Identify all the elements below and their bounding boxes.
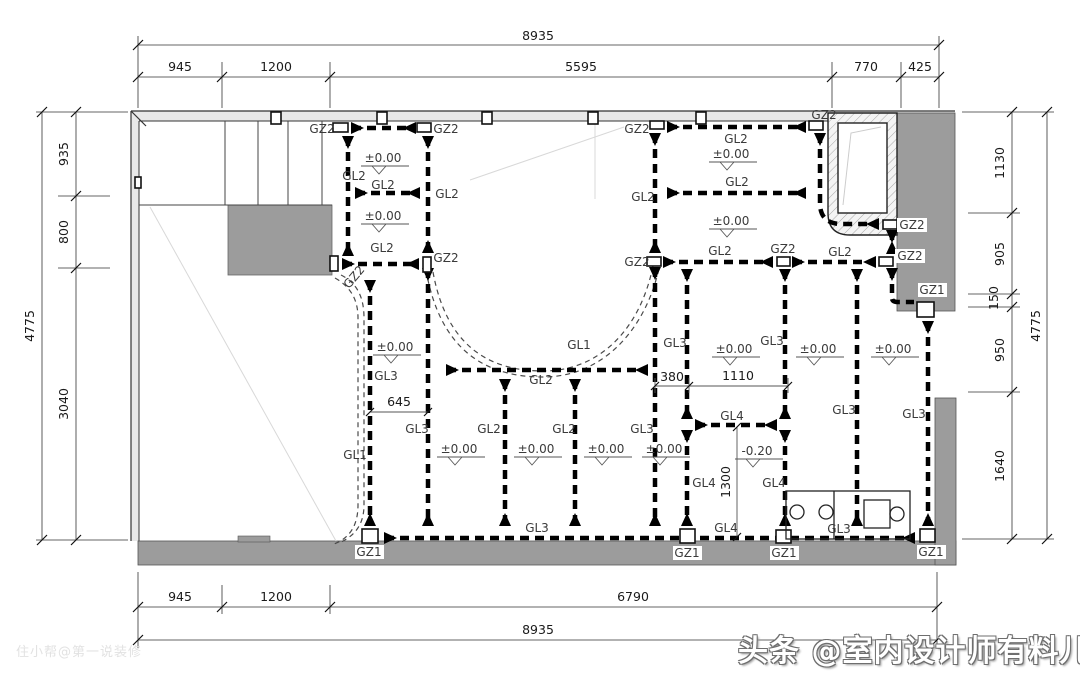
dimension-chain-right: 1130 905 150 950 1640 4775	[962, 107, 1054, 544]
gz2-column	[879, 257, 893, 266]
beam-layout-plan: ±0.00 ±0.00 ±0.00 ±0.00 ±0.00 ±0.00	[0, 0, 1080, 677]
level-marker: ±0.00	[584, 442, 632, 465]
left-wall-band	[131, 111, 139, 541]
gl2-label: GL2	[342, 169, 366, 183]
gz1-column	[680, 529, 695, 543]
gl3-label: GL3	[663, 336, 687, 350]
gl1-curve-inner	[433, 266, 653, 371]
gl2-label: GL2	[828, 245, 852, 259]
gz2-column	[330, 256, 338, 271]
dim-left-total: 4775	[22, 310, 37, 342]
dim-right-seg: 1130	[992, 147, 1007, 179]
gz2-column	[333, 123, 348, 132]
dim-top-seg: 425	[908, 59, 932, 74]
watermark-right: 头条 @室内设计师有料儿	[738, 626, 1080, 670]
elevator-shaft	[828, 113, 897, 235]
gz2-column	[883, 220, 897, 229]
gz2-label: GZ2	[624, 255, 649, 269]
wall-column	[271, 112, 281, 124]
dim-right-seg: 905	[992, 242, 1007, 266]
level-marker: ±0.00	[361, 209, 409, 232]
level-text: ±0.00	[588, 442, 625, 456]
gz2-label: GZ2	[811, 108, 836, 122]
dim-top-seg: 5595	[565, 59, 597, 74]
dim-380: 380	[660, 369, 684, 384]
fixture-circle	[890, 507, 904, 521]
level-text: ±0.00	[365, 209, 402, 223]
gz1-column	[776, 530, 791, 543]
level-text: ±0.00	[646, 442, 683, 456]
level-marker: ±0.00	[437, 442, 485, 465]
dim-left-seg: 3040	[56, 388, 71, 420]
dim-right-seg: 150	[986, 286, 1001, 310]
level-marker: ±0.00	[373, 340, 421, 363]
level-text: ±0.00	[875, 342, 912, 356]
gl4-label: GL4	[714, 521, 738, 535]
dim-right-seg: 1640	[992, 450, 1007, 482]
dim-top-seg: 770	[854, 59, 878, 74]
gl2-label: GL2	[631, 190, 655, 204]
gz2-label: GZ2	[897, 249, 922, 263]
dim-top-seg: 945	[168, 59, 192, 74]
dim-top-seg: 1200	[260, 59, 292, 74]
level-text: ±0.00	[365, 151, 402, 165]
gl3-label: GL3	[374, 369, 398, 383]
gz2-column	[650, 121, 664, 129]
gz2-label: GZ2	[770, 242, 795, 256]
gl3-label: GL3	[832, 403, 856, 417]
gl3-label: GL3	[827, 522, 851, 536]
dim-bottom-seg: 1200	[260, 589, 292, 604]
gz2-label: GZ2	[899, 218, 924, 232]
gl2-label: GL2	[370, 241, 394, 255]
gz1-tag: GZ1	[673, 546, 702, 560]
gz1-tag: GZ1	[918, 283, 947, 297]
dim-1110: 1110	[722, 368, 754, 383]
gz1-column	[920, 529, 935, 542]
dim-1300: 1300	[718, 466, 733, 498]
solid-block	[228, 205, 332, 275]
level-marker: ±0.00	[712, 342, 760, 365]
columns	[135, 112, 935, 543]
dim-left-seg: 935	[56, 142, 71, 166]
level-marker: ±0.00	[796, 342, 844, 365]
wall-column	[377, 112, 387, 124]
gz1-label: GZ1	[919, 283, 944, 297]
level-text: ±0.00	[713, 147, 750, 161]
left-curve-inner	[341, 275, 364, 542]
gz1-label: GZ1	[674, 546, 699, 560]
gl2-label: GL2	[435, 187, 459, 201]
dim-top-total: 8935	[522, 28, 554, 43]
level-marker: ±0.00	[871, 342, 919, 365]
right-wall-lower	[935, 398, 956, 565]
dim-right-seg: 950	[992, 338, 1007, 362]
gl2-label: GL2	[371, 178, 395, 192]
gz2-column	[777, 257, 790, 266]
gz2-tag: GZ2	[895, 249, 925, 263]
gl2-label: GL2	[529, 373, 553, 387]
gl1-label: GL1	[343, 448, 367, 462]
gl2-label: GL2	[724, 132, 748, 146]
floor-plan-screenshot: ±0.00 ±0.00 ±0.00 ±0.00 ±0.00 ±0.00	[0, 0, 1080, 677]
gl3-label: GL3	[630, 422, 654, 436]
gz2-tag: GZ2	[897, 218, 927, 232]
gz2-label: GZ2	[624, 122, 649, 136]
gz1-tag: GZ1	[917, 545, 946, 559]
left-curve-outer	[334, 278, 358, 544]
dim-left-seg: 800	[56, 220, 71, 244]
gz1-column	[362, 529, 378, 543]
shaft-opening	[838, 123, 887, 213]
dim-bottom-seg: 945	[168, 589, 192, 604]
gl2-label: GL2	[477, 422, 501, 436]
gl2-label: GL2	[552, 422, 576, 436]
level-marker: ±0.00	[709, 214, 757, 237]
gz2-label: GZ2	[433, 122, 458, 136]
staircase	[139, 121, 332, 205]
gl3-label: GL3	[902, 407, 926, 421]
gz2-column	[417, 123, 431, 132]
dimension-chain-top: 8935 945 1200 5595 770 425	[133, 28, 944, 108]
dim-bottom-total: 8935	[522, 622, 554, 637]
wall-column	[588, 112, 598, 124]
gl3-label: GL3	[525, 521, 549, 535]
gl1-label: GL1	[567, 338, 591, 352]
level-text: ±0.00	[800, 342, 837, 356]
fixture-square	[864, 500, 890, 528]
bottom-wall-step	[238, 536, 270, 542]
dim-bottom-seg: 6790	[617, 589, 649, 604]
curved-dashed-lines	[334, 264, 660, 544]
gl4-label: GL4	[720, 409, 744, 423]
level-marker: ±0.00	[709, 147, 757, 170]
gz1-label: GZ1	[356, 545, 381, 559]
dim-right-total: 4775	[1028, 310, 1043, 342]
level-marker-minus: -0.20	[735, 444, 783, 467]
dimension-chain-left: 935 800 3040 4775	[22, 107, 128, 545]
gz2-column	[423, 257, 431, 272]
fixture-circle	[819, 505, 833, 519]
gl4-label: GL4	[692, 476, 716, 490]
gz2-label: GZ2	[433, 251, 458, 265]
gz1-tag: GZ1	[355, 545, 384, 559]
gz1-label: GZ1	[771, 546, 796, 560]
right-wall-upper	[897, 113, 955, 311]
gz1-tag: GZ1	[770, 546, 799, 560]
watermark-left: 住小帮@第一说装修	[16, 641, 142, 660]
wall-column	[482, 112, 492, 124]
level-text: ±0.00	[377, 340, 414, 354]
gz2-label-rotated: GZ2	[341, 263, 368, 291]
level-marker: ±0.00	[514, 442, 562, 465]
bottom-wall	[138, 541, 956, 565]
level-text: ±0.00	[518, 442, 555, 456]
gl2-label: GL2	[725, 175, 749, 189]
level-marker: ±0.00	[642, 442, 690, 465]
level-marker: ±0.00	[361, 151, 409, 174]
level-text: -0.20	[741, 444, 772, 458]
level-text: ±0.00	[716, 342, 753, 356]
gz1-label: GZ1	[918, 545, 943, 559]
dim-645: 645	[387, 394, 411, 409]
level-text: ±0.00	[441, 442, 478, 456]
wall-column	[135, 177, 141, 188]
gz1-column	[917, 302, 934, 317]
gl2-label: GL2	[708, 244, 732, 258]
fixture-circle	[790, 505, 804, 519]
level-text: ±0.00	[713, 214, 750, 228]
gl3-label: GL3	[760, 334, 784, 348]
gz2-label: GZ2	[309, 122, 334, 136]
gz2-column	[809, 121, 823, 130]
gl4-label: GL4	[762, 476, 786, 490]
gl3-label: GL3	[405, 422, 429, 436]
wall-column	[696, 112, 706, 124]
gl1-curve-outer	[426, 264, 660, 377]
